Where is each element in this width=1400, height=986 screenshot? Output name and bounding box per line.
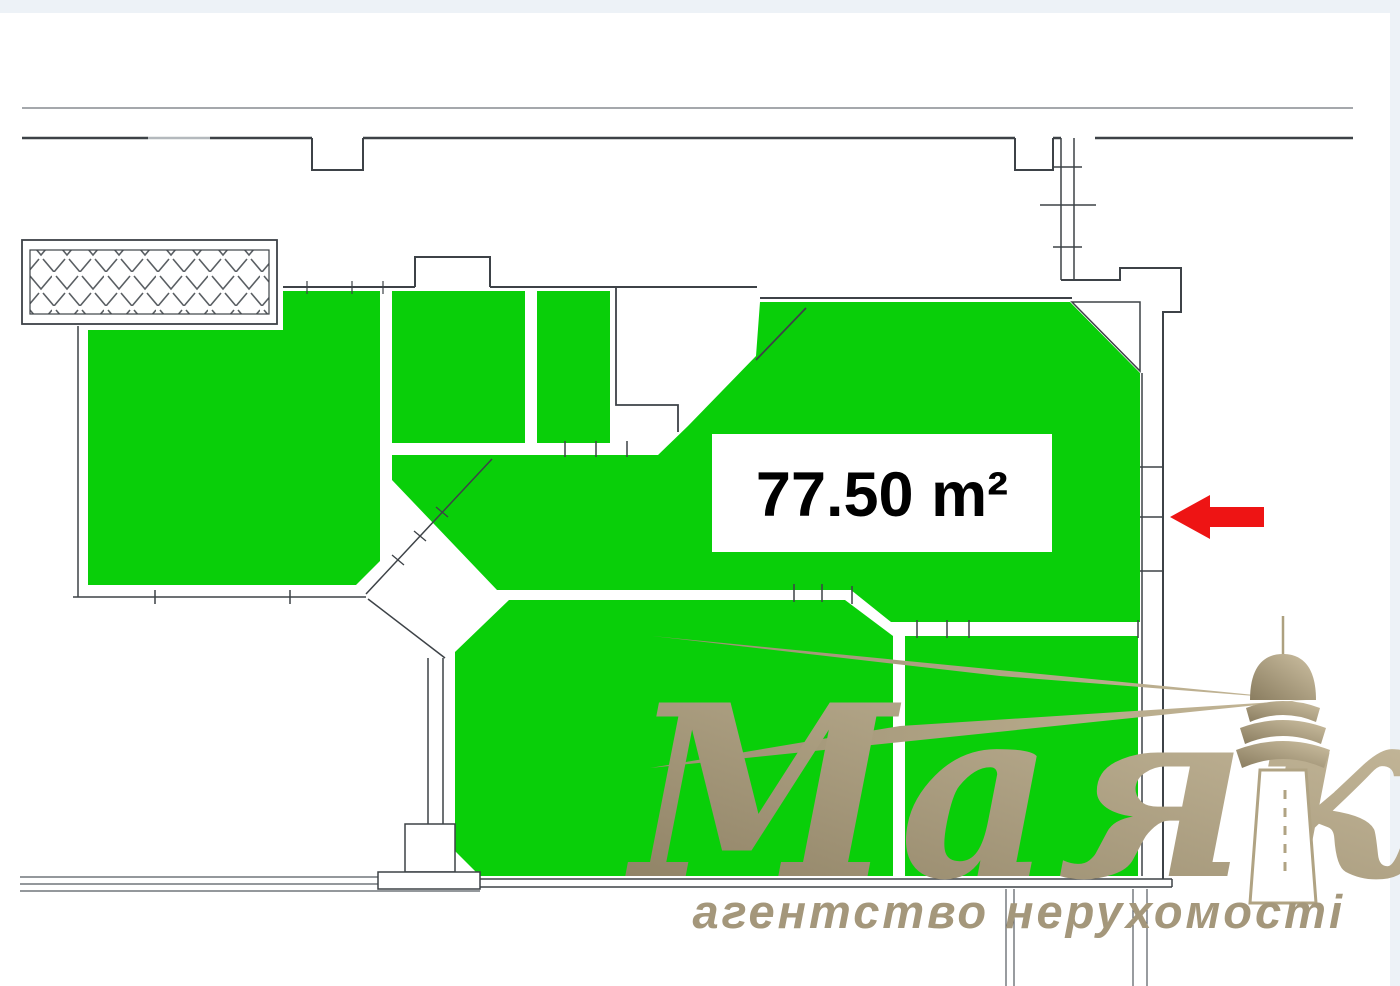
floor-plan-image: 77.50 m² Маяк агентство нерухомості	[0, 0, 1400, 986]
room-mid-a	[392, 291, 525, 443]
balcony-hatch	[22, 240, 277, 324]
area-label: 77.50 m²	[756, 460, 1008, 530]
room-left	[88, 291, 380, 585]
floor-plan-svg: 77.50 m² Маяк агентство нерухомості	[0, 0, 1400, 986]
room-mid-b	[537, 291, 610, 443]
top-accent-bar	[0, 0, 1400, 13]
watermark-tagline: агентство нерухомості	[692, 885, 1345, 938]
watermark: Маяк агентство нерухомості	[625, 616, 1400, 938]
entrance-arrow-icon	[1170, 495, 1264, 539]
area-label-box: 77.50 m²	[712, 434, 1052, 552]
